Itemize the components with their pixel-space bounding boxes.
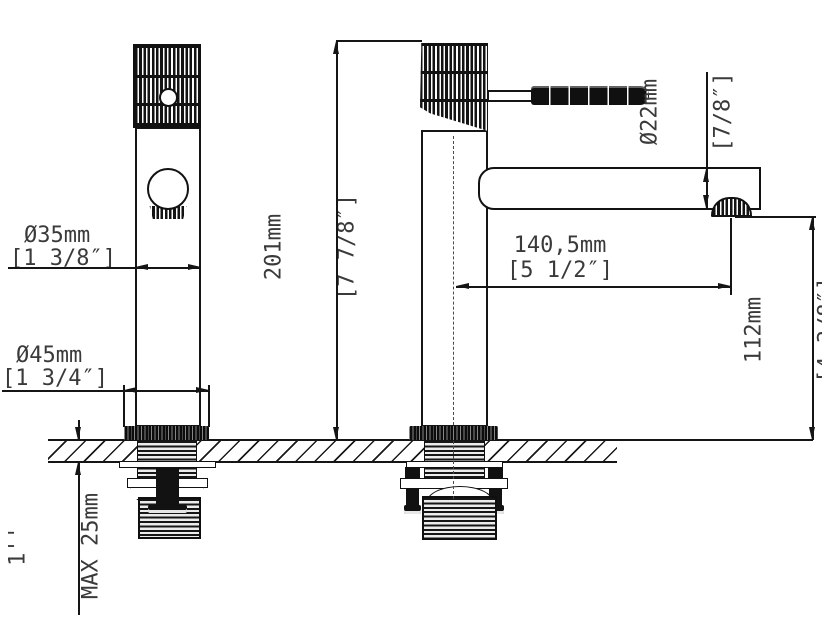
side-base-ring	[409, 426, 498, 440]
dim-extension-line	[735, 216, 816, 218]
dim-total-height: 201mm [7 7/8″]	[214, 194, 408, 300]
dim-line	[706, 72, 708, 210]
dim-spout-height-inch: [4 3/8″]	[815, 277, 822, 383]
dim-arrow	[456, 283, 469, 289]
dim-spout-height-mm: 112mm	[743, 277, 767, 383]
front-center-bolt	[156, 467, 179, 508]
dim-line	[336, 41, 338, 440]
dim-base-diameter-mm: Ø45mm	[16, 344, 82, 367]
dim-arrow	[809, 427, 815, 440]
front-spout-circle	[147, 168, 189, 210]
dim-total-height-inch: [7 7/8″]	[335, 194, 359, 300]
side-body	[421, 130, 488, 427]
dim-arrow	[333, 427, 339, 440]
knob-band-line	[420, 43, 488, 46]
dim-base-diameter-inch: [1 3/4″]	[2, 367, 108, 390]
dim-arrow	[333, 41, 339, 54]
dim-deck-thickness: 1'' MAX 25mm	[0, 493, 152, 599]
side-handle-neck	[487, 90, 533, 102]
dim-line	[78, 462, 80, 615]
technical-drawing-canvas: Ø35mm [1 3/8″] Ø45mm [1 3/4″] 201mm [7 7…	[0, 0, 822, 619]
dim-arrow	[124, 387, 137, 393]
dim-spout-diameter: Ø22mm [7/8″]	[590, 72, 784, 151]
front-bolt-foot	[148, 505, 187, 513]
front-base-ring	[124, 426, 209, 440]
dim-arrow	[188, 264, 201, 270]
side-handle-knob	[420, 43, 488, 131]
dim-arrow	[135, 264, 148, 270]
dim-spout-reach-mm: 140,5mm	[514, 234, 607, 257]
dim-line	[8, 267, 201, 269]
dim-arrow	[75, 427, 81, 440]
dim-arrow	[809, 217, 815, 230]
front-handle-knob	[133, 44, 201, 128]
dim-total-height-mm: 201mm	[263, 194, 287, 300]
dim-spout-diameter-mm: Ø22mm	[639, 72, 663, 151]
dim-extension-line	[336, 40, 422, 42]
dim-line	[2, 390, 209, 392]
side-body-centerline	[453, 136, 454, 425]
side-bolt-foot-left	[404, 505, 421, 514]
dim-spout-diameter-inch: [7/8″]	[711, 72, 735, 151]
dim-spout-reach-inch: [5 1/2″]	[507, 259, 613, 282]
dim-body-diameter-mm: Ø35mm	[24, 224, 90, 247]
dim-arrow	[703, 169, 709, 182]
dim-deck-thickness-line2: MAX 25mm	[79, 493, 103, 599]
side-threaded-pipe	[422, 496, 497, 540]
dim-line	[456, 286, 731, 288]
dim-arrow	[75, 462, 81, 475]
front-knob-hole	[159, 88, 178, 107]
dim-deck-thickness-line1: 1''	[7, 493, 31, 599]
knob-band-line	[420, 99, 488, 102]
side-shank-centerline	[453, 441, 454, 499]
dim-arrow	[703, 195, 709, 208]
dim-spout-height: 112mm [4 3/8″]	[694, 277, 822, 383]
dim-arrow	[196, 387, 209, 393]
dim-line	[812, 217, 814, 440]
knob-band-line	[133, 75, 201, 78]
countertop-hatch	[48, 441, 617, 461]
knob-band-line	[420, 71, 488, 74]
